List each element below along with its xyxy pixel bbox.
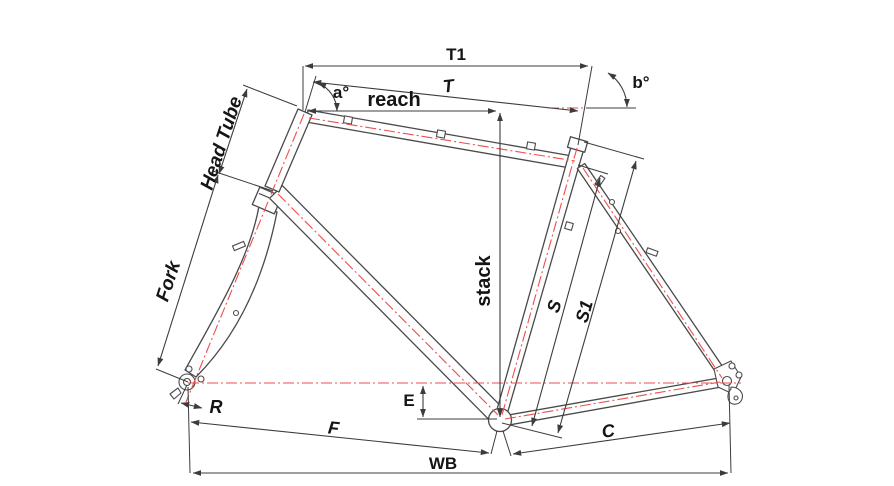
geometry-drawing: T1 T reach a° b° Head Tube Fork stack S … xyxy=(0,0,894,486)
label-s: S xyxy=(543,298,566,315)
cable-guide-1 xyxy=(343,116,352,124)
dim-seat-tube-s1 xyxy=(558,161,636,433)
hanger-bolt xyxy=(734,396,738,400)
chain-stay xyxy=(502,377,724,426)
label-stack: stack xyxy=(473,255,495,307)
frame-outline xyxy=(185,109,729,426)
s1-top-extension xyxy=(584,142,644,159)
label-reach: reach xyxy=(367,89,420,111)
label-s1: S1 xyxy=(572,298,597,325)
label-r: R xyxy=(210,397,223,417)
seat-tube-boss xyxy=(565,222,574,231)
head-tube-top-extension xyxy=(243,85,297,106)
bb-to-f-extension xyxy=(491,431,497,454)
front-axle-vertical-extension xyxy=(188,387,190,473)
seatstay-brake-boss xyxy=(595,175,605,186)
head-axis-extension xyxy=(305,76,316,112)
seat-stay xyxy=(577,164,728,381)
label-angle-a: a° xyxy=(333,83,349,102)
dim-front-center xyxy=(191,422,489,453)
top-tube-centerline xyxy=(309,118,575,161)
dim-seat-angle-arc xyxy=(608,73,627,107)
bb-to-c-extension xyxy=(503,431,511,456)
front-dropout-tab xyxy=(170,388,181,399)
label-wb: WB xyxy=(429,454,457,473)
label-fork: Fork xyxy=(152,257,185,304)
fork-brake-boss xyxy=(233,241,246,250)
rack-boss xyxy=(646,248,658,256)
label-angle-b: b° xyxy=(632,73,649,92)
dim-chainstay xyxy=(513,423,730,454)
rear-axle xyxy=(723,377,732,386)
fork-eyelet xyxy=(234,311,239,316)
label-t1: T1 xyxy=(446,45,466,64)
seatstay-eyelet-1 xyxy=(610,200,615,205)
label-t: T xyxy=(442,75,457,96)
cable-guide-2 xyxy=(436,130,445,138)
cable-guide-3 xyxy=(526,142,535,150)
rear-dropout-eyelet-1 xyxy=(729,363,735,369)
bike-frame-geometry-diagram: T1 T reach a° b° Head Tube Fork stack S … xyxy=(0,0,894,486)
seat-axis-extension xyxy=(578,66,592,145)
label-head-tube: Head Tube xyxy=(197,94,247,193)
rear-dropout-eyelet-2 xyxy=(736,372,742,378)
front-dropout-eyelet-1 xyxy=(186,366,192,372)
front-dropout-eyelet-2 xyxy=(198,376,204,382)
label-c: C xyxy=(600,420,617,442)
label-f: F xyxy=(327,418,341,439)
label-e: E xyxy=(403,391,414,410)
dim-rake xyxy=(181,403,202,408)
seat-tube-centerline xyxy=(502,148,577,415)
